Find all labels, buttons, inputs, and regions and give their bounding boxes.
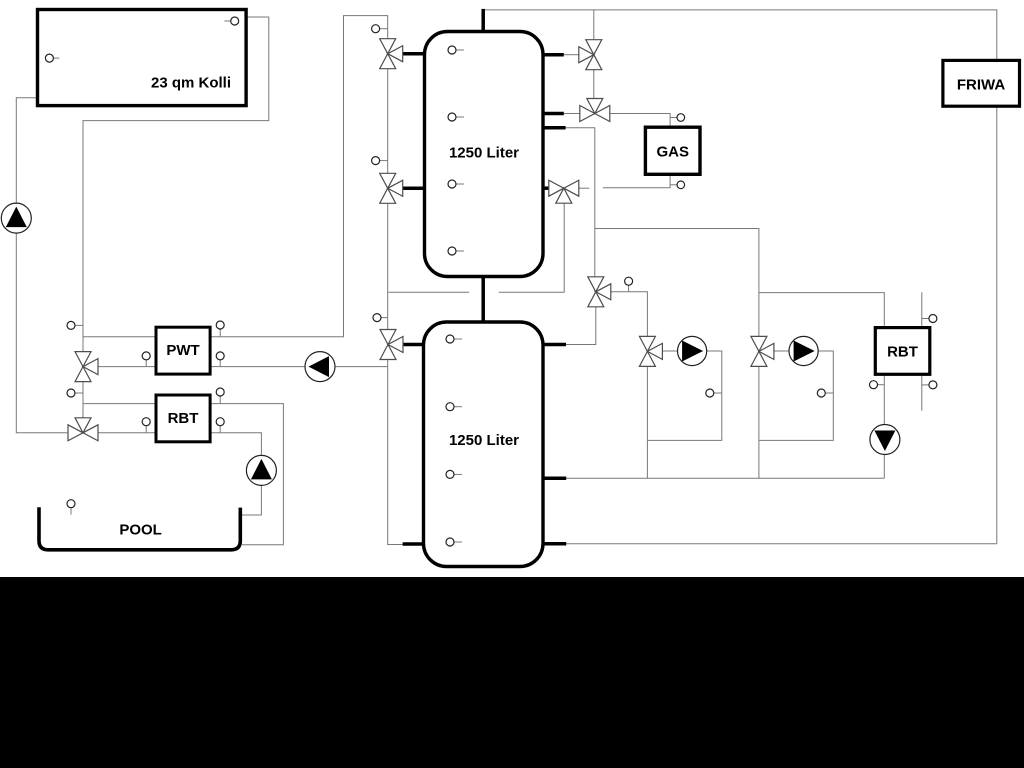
svg-text:1250 Liter: 1250 Liter [449, 432, 519, 449]
svg-text:1250 Liter: 1250 Liter [449, 144, 519, 161]
svg-text:GAS: GAS [656, 143, 689, 160]
svg-text:POOL: POOL [119, 522, 162, 539]
svg-text:PWT: PWT [166, 342, 199, 359]
svg-text:FRIWA: FRIWA [957, 77, 1005, 94]
svg-text:RBT: RBT [887, 344, 918, 361]
svg-text:RBT: RBT [168, 410, 199, 427]
svg-text:23 qm Kolli: 23 qm Kolli [151, 75, 231, 92]
